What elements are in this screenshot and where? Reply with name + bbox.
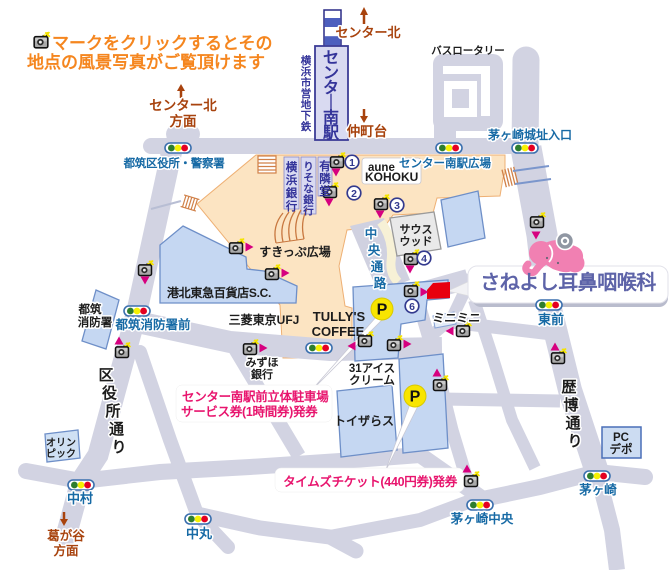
svg-text:バスロータリー: バスロータリー: [431, 45, 505, 57]
svg-text:KOHOKU: KOHOKU: [365, 170, 418, 184]
svg-text:都筑: 都筑: [78, 302, 102, 316]
svg-text:茅ヶ崎中央: 茅ヶ崎中央: [451, 511, 514, 526]
svg-text:仲町台: 仲町台: [347, 123, 388, 139]
svg-text:マークをクリックするとその: マークをクリックするとその: [52, 34, 273, 53]
svg-text:ウッド: ウッド: [400, 235, 433, 248]
svg-text:サービス券(1時間券)発券: サービス券(1時間券)発券: [181, 404, 318, 419]
svg-text:方面: 方面: [53, 543, 79, 558]
svg-text:中村: 中村: [67, 491, 93, 506]
svg-text:ミニミニ: ミニミニ: [432, 311, 482, 325]
svg-text:トイザらス: トイザらス: [334, 414, 394, 428]
svg-text:センター北: センター北: [149, 98, 217, 113]
svg-text:茅ヶ崎城址入口: 茅ヶ崎城址入口: [488, 127, 572, 142]
svg-text:クリーム: クリーム: [349, 374, 395, 387]
svg-text:方面: 方面: [170, 113, 197, 129]
svg-text:COFFEE: COFFEE: [312, 324, 365, 339]
svg-text:有隣堂: 有隣堂: [319, 159, 331, 198]
svg-text:東前: 東前: [538, 312, 564, 327]
svg-text:2: 2: [351, 188, 357, 200]
svg-text:三菱東京UFJ: 三菱東京UFJ: [229, 312, 300, 327]
svg-text:さねよし耳鼻咽喉科: さねよし耳鼻咽喉科: [480, 270, 656, 294]
svg-text:センタ｜南駅: センタ｜南駅: [322, 50, 340, 142]
svg-text:デポ: デポ: [610, 442, 633, 456]
svg-text:銀行: 銀行: [251, 367, 273, 381]
svg-text:タイムズチケット(440円券)発券: タイムズチケット(440円券)発券: [283, 474, 458, 489]
svg-text:PC: PC: [613, 432, 629, 444]
svg-text:ピック: ピック: [46, 448, 76, 460]
svg-text:横浜市営地下鉄: 横浜市営地下鉄: [301, 54, 312, 133]
svg-text:中丸: 中丸: [186, 526, 213, 541]
svg-text:葛が谷: 葛が谷: [46, 528, 85, 543]
svg-text:すきっぷ広場: すきっぷ広場: [259, 244, 331, 259]
svg-text:6: 6: [409, 301, 415, 313]
svg-text:3: 3: [394, 200, 400, 212]
svg-text:都筑消防署前: 都筑消防署前: [114, 317, 191, 332]
svg-text:4: 4: [421, 253, 427, 265]
svg-text:みずほ: みずほ: [246, 355, 279, 369]
svg-text:1: 1: [349, 157, 355, 169]
svg-text:都筑区役所・警察署: 都筑区役所・警察署: [123, 156, 226, 170]
svg-text:消防署: 消防署: [78, 315, 113, 329]
svg-text:オリン: オリン: [46, 437, 76, 449]
svg-text:茅ヶ崎: 茅ヶ崎: [579, 482, 617, 497]
svg-text:地点の風景写真がご覧頂けます: 地点の風景写真がご覧頂けます: [27, 52, 265, 72]
svg-text:横浜銀行: 横浜銀行: [285, 160, 298, 213]
svg-text:センター南駅前立体駐車場: センター南駅前立体駐車場: [182, 389, 329, 404]
svg-text:りそな銀行: りそな銀行: [302, 161, 314, 217]
svg-text:港北東急百貨店S.C.: 港北東急百貨店S.C.: [167, 285, 271, 300]
svg-text:TULLY'S: TULLY'S: [313, 309, 366, 324]
svg-text:センター南駅広場: センター南駅広場: [399, 156, 491, 170]
svg-text:センター北: センター北: [335, 25, 400, 40]
svg-text:サウス: サウス: [400, 223, 433, 236]
svg-text:31アイス: 31アイス: [349, 362, 395, 375]
